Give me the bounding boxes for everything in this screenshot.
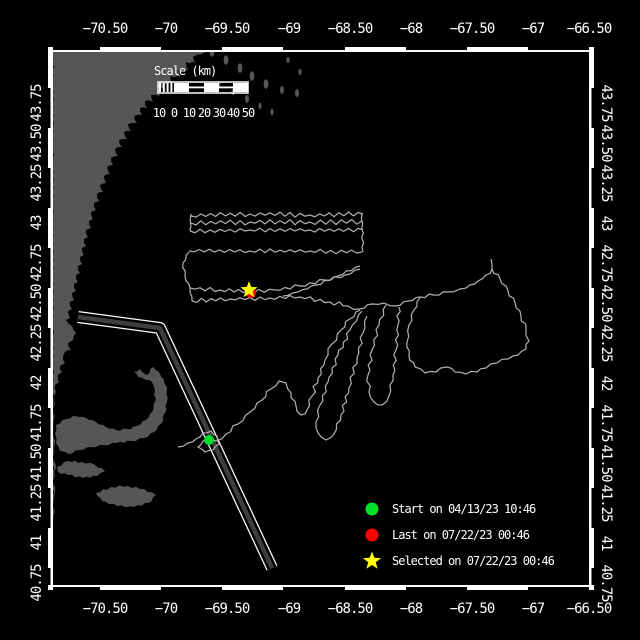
frame-dash <box>592 568 595 585</box>
track-survey-line-1[interactable] <box>191 212 363 217</box>
x-axis-tick-bottom: −66.50 <box>549 601 629 617</box>
scale-bar-segment-line <box>189 87 204 89</box>
frame-dash <box>406 587 467 590</box>
frame-dash <box>592 248 595 288</box>
frame-dash <box>528 587 589 590</box>
frame-dash <box>48 328 51 368</box>
legend-label-selected[interactable]: Selected on 07/22/23 00:46 <box>392 554 554 568</box>
legend-marker-circle[interactable] <box>366 529 379 542</box>
frame-dash <box>406 47 467 50</box>
x-axis-tick-top: −66.50 <box>549 21 629 37</box>
island-west <box>57 461 105 478</box>
frame-dash <box>592 88 595 128</box>
map-canvas[interactable] <box>0 0 640 640</box>
plot-window: −70.50−70.50−70−70−69.50−69.50−69−69−68.… <box>0 0 640 640</box>
legend-marker-star[interactable] <box>363 552 381 569</box>
y-axis-tick-right: 40.75 <box>598 543 614 623</box>
track-chain-loop-east[interactable] <box>447 269 529 374</box>
islet <box>286 57 289 63</box>
track-chain-top-notch[interactable] <box>491 259 492 269</box>
frame-dash <box>48 488 51 528</box>
islet <box>270 109 273 115</box>
track-chain-spine[interactable] <box>360 269 492 309</box>
frame-dash <box>283 47 345 50</box>
legend-label-last[interactable]: Last on 07/22/23 00:46 <box>392 528 529 542</box>
scale-bar-segment-line <box>219 87 233 89</box>
track-survey-line-6[interactable] <box>192 296 360 310</box>
frame-dash <box>592 168 595 208</box>
frame-dash <box>592 328 595 368</box>
scale-bar-segment-solid <box>204 83 219 92</box>
map-interior <box>52 46 529 568</box>
track-connector-left-56[interactable] <box>190 288 192 301</box>
legend-marker-circle[interactable] <box>366 503 379 516</box>
frame-dash <box>48 568 51 585</box>
islet <box>280 86 284 94</box>
track-chain-loop-c[interactable] <box>407 298 447 373</box>
frame-dash <box>283 587 345 590</box>
frame-dash <box>528 47 589 50</box>
islet <box>264 79 269 89</box>
islet <box>298 69 301 75</box>
islet <box>224 55 229 65</box>
scale-bar-title: Scale (km) <box>154 64 216 78</box>
scale-bar-hatch <box>170 83 172 92</box>
legend-label-start[interactable]: Start on 04/13/23 10:46 <box>392 502 535 516</box>
track-connector-left-12[interactable] <box>190 214 191 231</box>
scale-bar-segment-solid <box>233 83 248 92</box>
scale-bar-hatch <box>163 83 165 92</box>
track-survey-line-2[interactable] <box>191 220 362 225</box>
track-survey-line-5-selected[interactable] <box>190 269 360 293</box>
islet <box>245 95 249 103</box>
frame-dash <box>53 47 100 50</box>
frame-dash <box>161 47 222 50</box>
scale-bar-segment-solid <box>174 83 189 92</box>
frame-dash <box>592 408 595 448</box>
track-survey-line-3[interactable] <box>190 228 363 233</box>
track-survey-line-4[interactable] <box>189 249 362 254</box>
scale-bar-hatch <box>167 83 169 92</box>
y-axis-tick-left: 40.75 <box>29 543 45 623</box>
island-east <box>96 485 156 507</box>
frame-dash <box>48 168 51 208</box>
track-transit-meander[interactable] <box>216 310 360 441</box>
track-connector-left-45[interactable] <box>183 252 190 288</box>
frame-dash <box>53 587 100 590</box>
frame-dash <box>592 488 595 528</box>
track-chain-loop-b[interactable] <box>367 305 401 405</box>
track-diagonal-connector[interactable] <box>283 266 360 296</box>
scale-bar-number: 50 <box>228 106 268 120</box>
frame-dash <box>48 408 51 448</box>
frame-dash <box>48 88 51 128</box>
islet <box>95 185 98 191</box>
frame-dash <box>48 248 51 288</box>
islet <box>295 89 299 97</box>
scale-bar-hatch <box>159 83 161 92</box>
islet <box>250 71 255 81</box>
frame-dash <box>161 587 222 590</box>
cape-cod <box>55 367 168 454</box>
islet <box>238 63 243 73</box>
track-connector-right-14[interactable] <box>361 214 363 252</box>
start-position-marker[interactable] <box>204 435 214 445</box>
